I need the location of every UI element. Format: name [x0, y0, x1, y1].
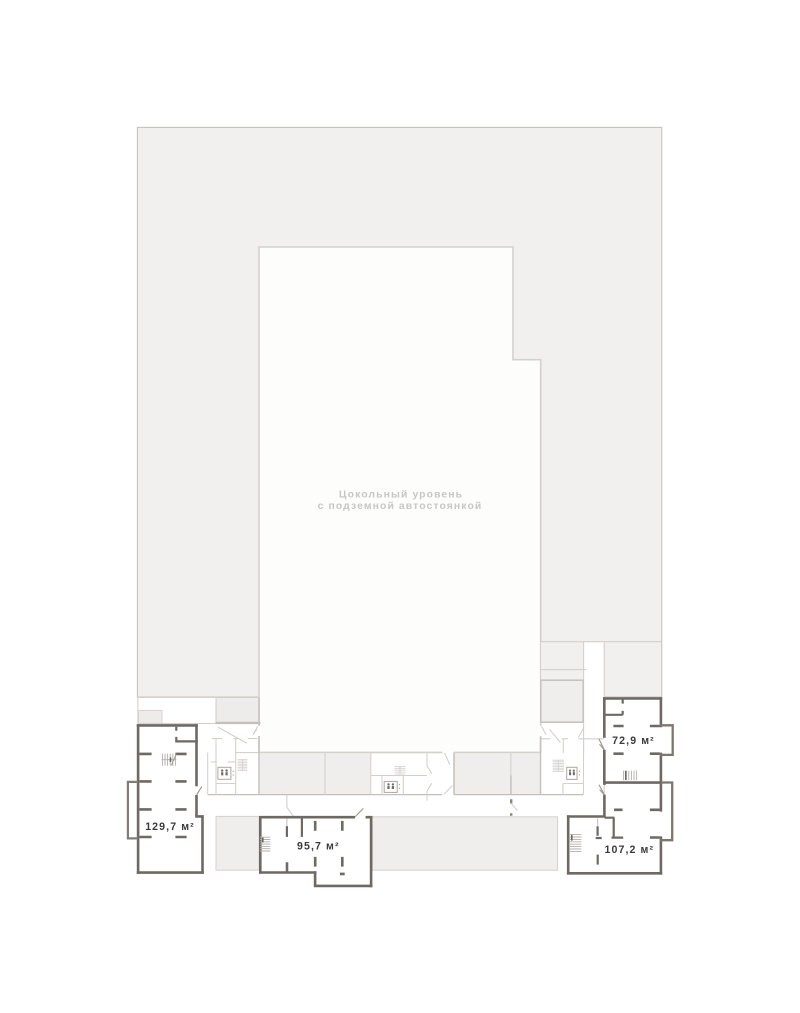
svg-text:107,2 м²: 107,2 м² [604, 844, 654, 856]
svg-text:95,7 м²: 95,7 м² [297, 841, 340, 853]
svg-text:с подземной автостоянкой: с подземной автостоянкой [318, 501, 483, 512]
svg-text:129,7 м²: 129,7 м² [145, 821, 195, 833]
svg-text:Цокольный уровень: Цокольный уровень [339, 489, 463, 500]
svg-text:72,9 м²: 72,9 м² [612, 735, 655, 747]
